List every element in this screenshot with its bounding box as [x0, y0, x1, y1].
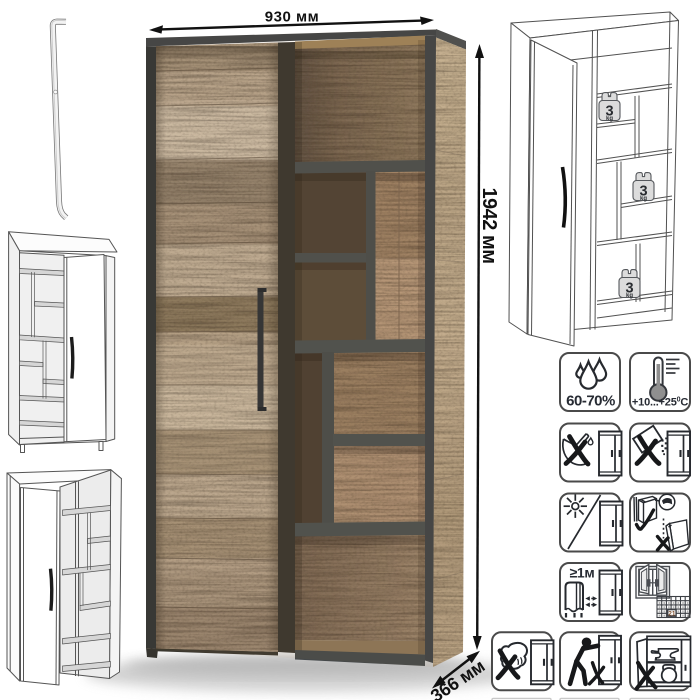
svg-text:≥1м: ≥1м [570, 565, 595, 581]
svg-text:60-70%: 60-70% [566, 393, 615, 410]
svg-text:930 мм: 930 мм [265, 9, 319, 26]
svg-text:21: 21 [668, 610, 676, 617]
svg-text:1942 мм: 1942 мм [478, 187, 500, 263]
svg-text:+10...+250С: +10...+250С [632, 397, 688, 409]
